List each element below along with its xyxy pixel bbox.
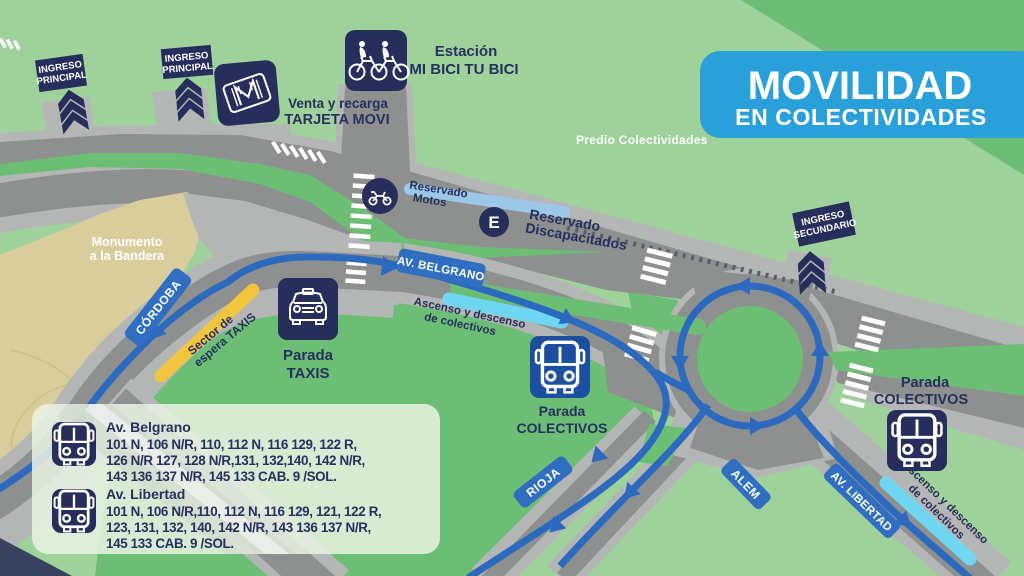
svg-text:145 133 CAB. 9 /SOL.: 145 133 CAB. 9 /SOL. [106,536,234,551]
svg-text:Av. Belgrano: Av. Belgrano [106,419,191,435]
svg-text:126 N/R 127, 128 N/R,131, 132,: 126 N/R 127, 128 N/R,131, 132,140, 142 N… [106,453,365,468]
svg-text:COLECTIVOS: COLECTIVOS [874,392,969,408]
svg-text:Parada: Parada [539,403,586,419]
svg-text:Av. Libertad: Av. Libertad [106,486,185,502]
svg-text:MOVILIDAD: MOVILIDAD [748,64,972,108]
svg-text:Estación: Estación [435,43,498,60]
svg-text:101 N, 106 N/R,110, 112 N, 116: 101 N, 106 N/R,110, 112 N, 116 129, 121,… [106,504,381,519]
svg-text:a la Bandera: a la Bandera [90,249,165,263]
svg-text:Predio Colectividades: Predio Colectividades [576,133,708,147]
svg-text:TAXIS: TAXIS [286,365,329,382]
svg-text:Parada: Parada [901,375,950,391]
svg-text:MI BICI TU BICI: MI BICI TU BICI [409,61,518,78]
svg-text:Parada: Parada [283,347,334,364]
svg-text:EN COLECTIVIDADES: EN COLECTIVIDADES [735,104,987,130]
svg-text:Monumento: Monumento [92,235,163,249]
svg-text:E: E [488,213,499,232]
svg-text:123, 131, 132, 140, 142 N/R, 1: 123, 131, 132, 140, 142 N/R, 143 136 137… [106,520,371,535]
svg-text:Venta y recarga: Venta y recarga [288,96,388,111]
svg-text:COLECTIVOS: COLECTIVOS [516,420,607,436]
svg-text:TARJETA MOVI: TARJETA MOVI [284,112,389,128]
svg-text:101 N, 106 N/R, 110, 112 N, 11: 101 N, 106 N/R, 110, 112 N, 116 129, 122… [106,437,357,452]
svg-text:143 136 137 N/R, 145 133 CAB.: 143 136 137 N/R, 145 133 CAB. 9 /SOL. [106,469,336,484]
